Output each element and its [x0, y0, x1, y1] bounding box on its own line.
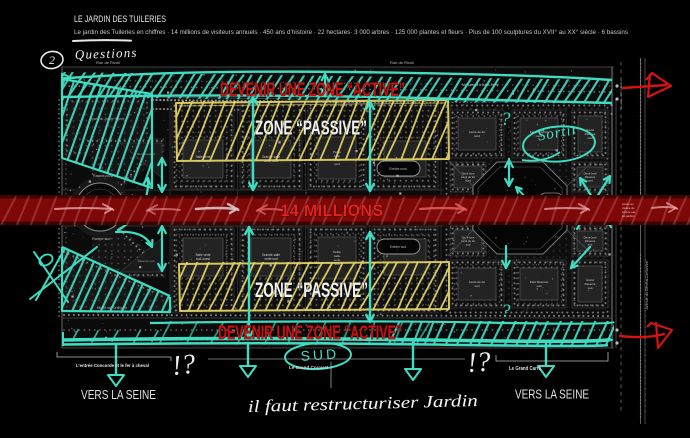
- svg-text:SUD: SUD: [300, 345, 340, 364]
- svg-text:Le Grand Couvert: Le Grand Couvert: [289, 365, 328, 370]
- svg-text:nord: nord: [334, 162, 340, 166]
- svg-text:?: ?: [501, 301, 511, 322]
- svg-text:Avenue du Général-Lemonnier: Avenue du Général-Lemonnier: [645, 260, 649, 310]
- svg-text:DEVENIR UNE ZONE “ACTIVE”: DEVENIR UNE ZONE “ACTIVE”: [218, 322, 402, 344]
- svg-text:Rampe sud: Rampe sud: [92, 237, 110, 241]
- svg-text:sud: sud: [588, 286, 593, 290]
- svg-text:sud: sud: [475, 284, 480, 288]
- svg-text:nord: nord: [474, 134, 480, 138]
- svg-text:2: 2: [49, 53, 55, 67]
- svg-text:Rue de Rivoli: Rue de Rivoli: [96, 60, 120, 65]
- svg-text:ZONE “PASSIVE”: ZONE “PASSIVE”: [255, 279, 368, 302]
- svg-text:Exèdre sud: Exèdre sud: [390, 245, 406, 249]
- svg-text:DEVENIR UNE ZONE “ACTIVE”: DEVENIR UNE ZONE “ACTIVE”: [220, 79, 405, 101]
- svg-text:nord: nord: [587, 179, 593, 183]
- svg-text:sud: sud: [537, 284, 542, 288]
- svg-text:ZONE “PASSIVE”: ZONE “PASSIVE”: [255, 118, 367, 140]
- svg-text:Réservé sud: Réservé sud: [138, 259, 155, 263]
- svg-text:L’entrée Concorde et le fer à: L’entrée Concorde et le fer à cheval: [76, 363, 149, 368]
- svg-text:verte sud: verte sud: [264, 257, 277, 261]
- svg-text:sud: sud: [466, 243, 471, 247]
- svg-text:VERS LA SEINE: VERS LA SEINE: [81, 388, 156, 402]
- svg-text:14 MILLIONS: 14 MILLIONS: [281, 201, 384, 220]
- svg-text:VERS LA SEINE: VERS LA SEINE: [515, 388, 589, 402]
- svg-text:sud-ouest: sud-ouest: [196, 257, 210, 261]
- svg-text:Rue de Rivoli: Rue de Rivoli: [390, 60, 414, 65]
- svg-text:Le jardin des Tuileries en chi: Le jardin des Tuileries en chiffres · 14…: [74, 30, 628, 36]
- svg-text:Exèdre nord: Exèdre nord: [389, 167, 407, 171]
- svg-text:!?: !?: [466, 346, 491, 379]
- svg-text:!?: !?: [170, 349, 196, 382]
- svg-text:?: ?: [501, 109, 511, 130]
- svg-text:Terrasse des Tuileries: Terrasse des Tuileries: [619, 80, 623, 110]
- svg-text:Musée du Jeu de Paume: Musée du Jeu de Paume: [89, 117, 125, 121]
- svg-text:Le Grand Carré: Le Grand Carré: [509, 366, 541, 372]
- svg-text:LE JARDIN DES TUILERIES: LE JARDIN DES TUILERIES: [74, 14, 166, 24]
- svg-text:les jardins: les jardins: [622, 214, 635, 218]
